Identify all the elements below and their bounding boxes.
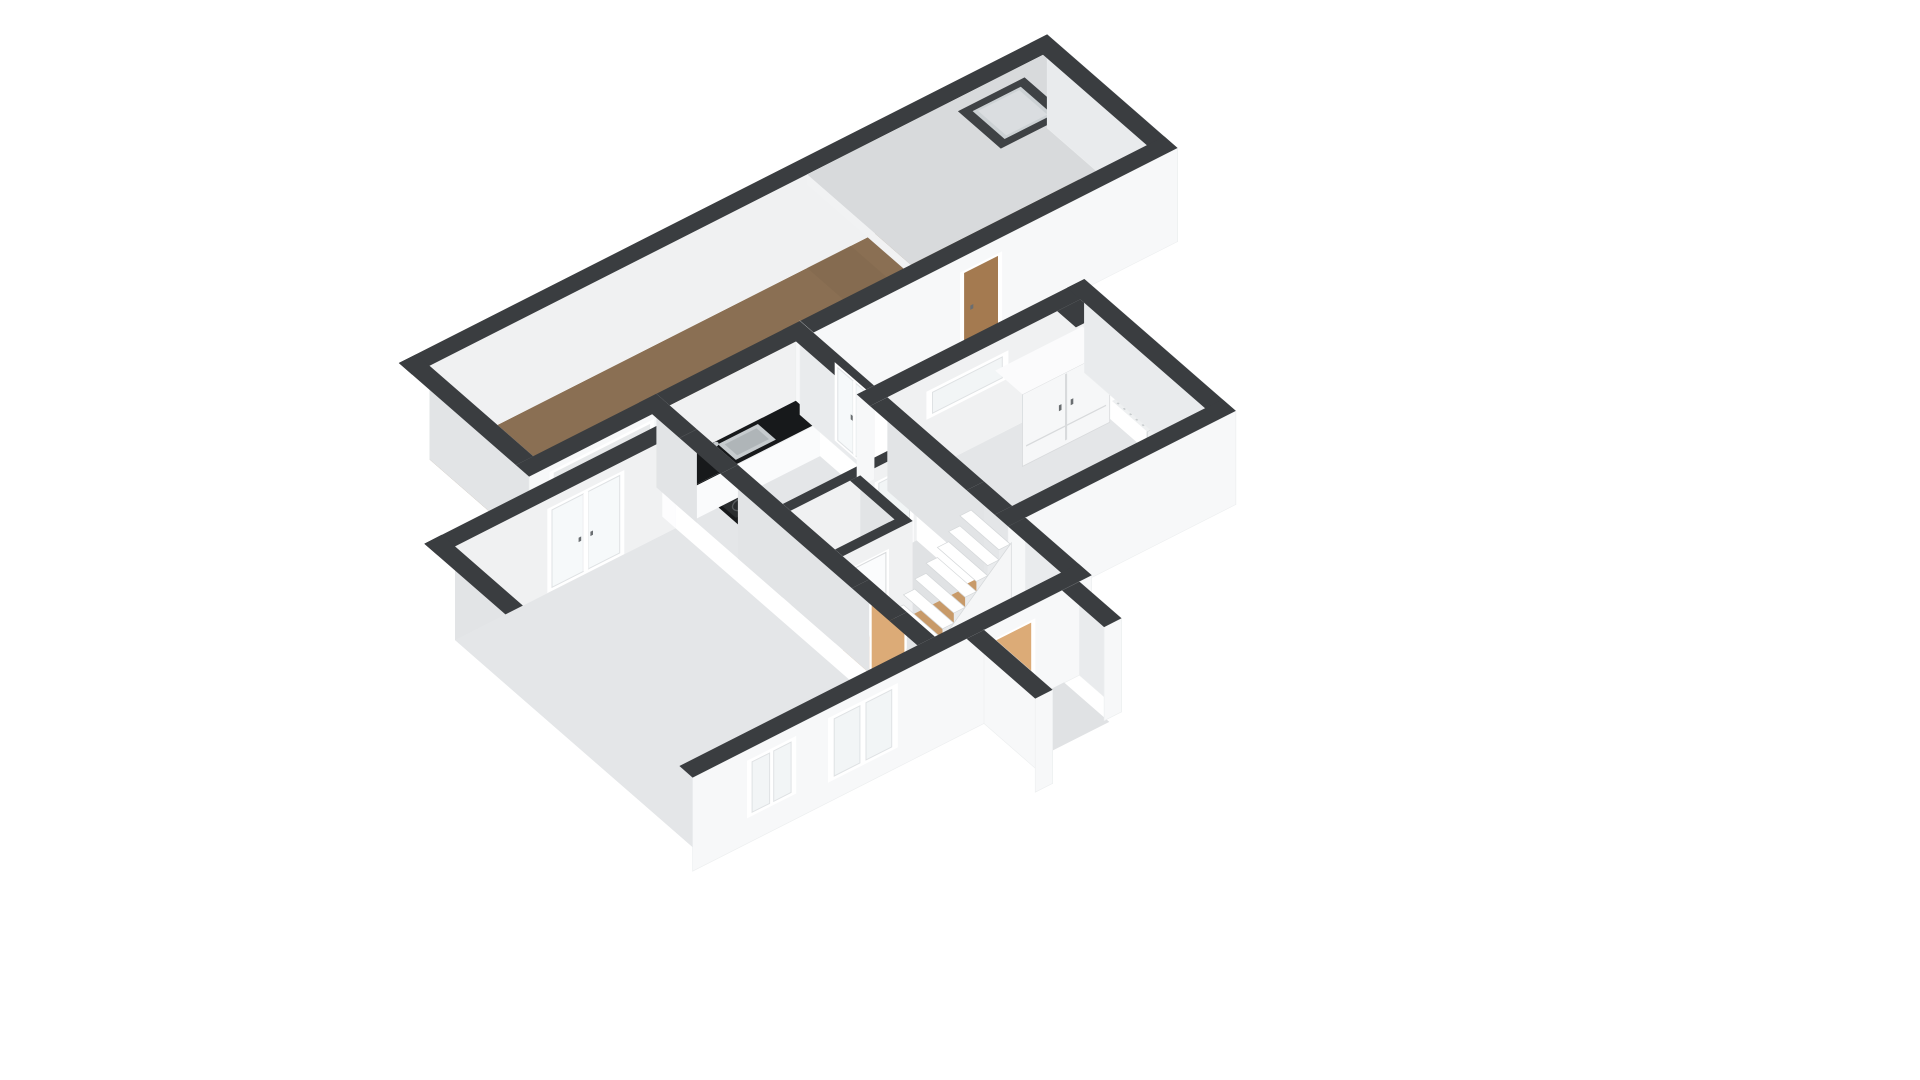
floorplan-3d-render [0,0,1920,1080]
porch-wall-left-end [1035,690,1052,792]
kitchen-window-pane-1 [838,368,853,454]
french-door-glass-right [588,476,619,569]
french-doors-post [583,491,588,571]
living-window-1-pane-l [752,753,770,812]
kitchen-window-post [853,381,856,456]
porch-wall-right-end [1104,618,1121,720]
living-window-1-pane-r [774,742,791,801]
living-window-2-pane-r [866,690,892,760]
floorplan-canvas [0,0,1920,1080]
living-window-2-pane-l [834,706,860,776]
wardrobe-door-split [1065,373,1067,440]
